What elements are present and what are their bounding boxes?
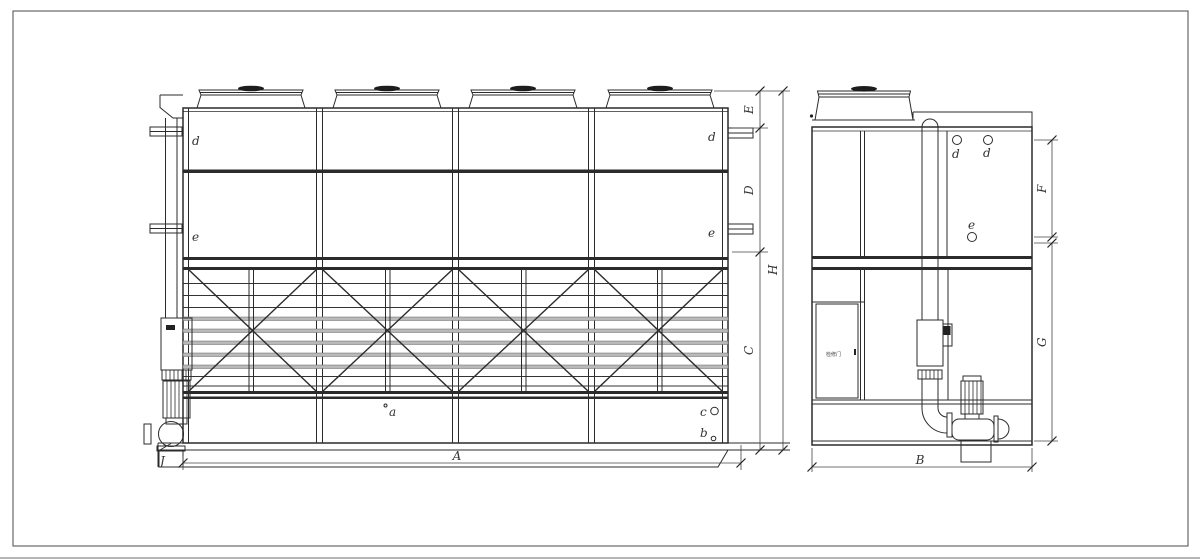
front-dimensions: E D C H A <box>179 87 791 471</box>
front-pump-assembly <box>144 118 192 451</box>
cooling-tower-two-view-drawing: d d e e a c b J E D C H A <box>0 0 1200 559</box>
label-d-right: d <box>708 130 716 144</box>
label-dim-H: H <box>766 264 780 276</box>
label-dim-D: D <box>742 185 756 196</box>
label-dim-E: E <box>742 105 756 115</box>
side-fan-cowl <box>810 86 915 120</box>
front-louver-lattice <box>183 270 728 391</box>
label-dim-G: G <box>1035 337 1049 347</box>
front-connection-marks <box>384 404 718 441</box>
label-b: b <box>700 426 708 440</box>
label-e-left: e <box>192 230 199 244</box>
label-dim-F: F <box>1035 184 1049 194</box>
label-a: a <box>389 405 396 419</box>
fan-cowl-icon <box>333 86 441 108</box>
label-dim-B: B <box>915 453 925 467</box>
front-basin-base <box>158 95 790 467</box>
front-part-labels: d d e e a c b J <box>157 130 716 468</box>
label-dim-C: C <box>742 346 756 355</box>
fan-cowl-icon <box>606 86 714 108</box>
label-dim-A: A <box>452 449 462 463</box>
side-view <box>810 86 1032 462</box>
fan-cowl-icon <box>469 86 577 108</box>
label-d-side-2: d <box>983 146 991 160</box>
label-e-right: e <box>708 226 715 240</box>
side-pump <box>952 376 1009 462</box>
dimension-ticks <box>179 87 788 468</box>
sheet-border-frame <box>13 11 1188 546</box>
label-d-side-1: d <box>952 147 960 161</box>
front-right-stubs <box>728 128 753 234</box>
front-casing <box>183 108 728 443</box>
label-c: c <box>700 405 707 419</box>
access-door-label: 检修门 <box>826 351 841 358</box>
fan-cowl-row <box>197 86 714 108</box>
side-part-labels: d d e 检修门 <box>826 146 991 358</box>
drawing-sheet: d d e e a c b J E D C H A <box>0 0 1200 559</box>
fan-cowl-icon <box>197 86 305 108</box>
label-d-left: d <box>192 134 200 148</box>
front-view <box>144 86 790 467</box>
label-e-side: e <box>968 218 975 232</box>
